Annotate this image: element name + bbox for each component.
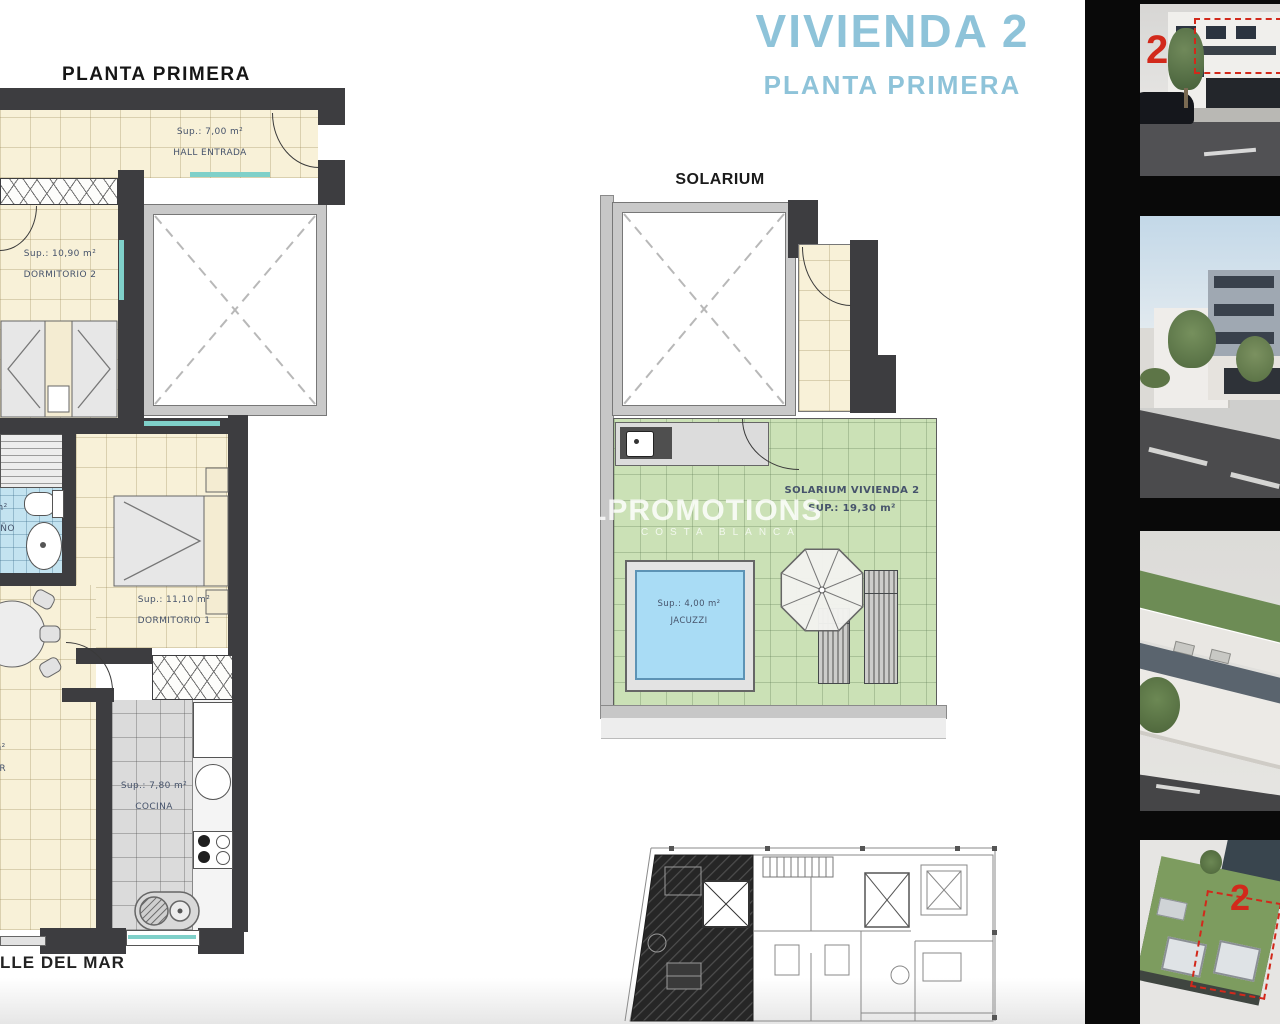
render-street-facade: 2: [1140, 4, 1280, 176]
bano-label: m²BAÑO: [0, 498, 26, 540]
wall-light: [601, 706, 946, 718]
floor-plan-title: PLANTA PRIMERA: [62, 64, 251, 86]
unit-number: 2: [1230, 880, 1250, 916]
wall: [40, 928, 126, 954]
salon-label-fragment: m²OR: [0, 738, 14, 780]
toilet-cistern: [52, 490, 64, 518]
cocina-label: Sup.: 7,80 m²COCINA: [114, 776, 194, 818]
road: [1140, 122, 1280, 176]
oven-circle: [195, 764, 231, 800]
jacuzzi-label: Sup.: 4,00 m²JACUZZI: [635, 596, 743, 630]
kitchen-sink: [134, 891, 200, 931]
unit-outline: [1194, 18, 1280, 74]
unit-number: 2: [1146, 30, 1168, 70]
tree: [1236, 336, 1274, 382]
render-aerial-building: [1140, 531, 1280, 811]
terrace-edge: [601, 718, 946, 739]
dining-table: [0, 588, 62, 684]
window-glass: [144, 421, 220, 426]
closet-hall: [0, 178, 118, 205]
garage-door: [1206, 78, 1280, 110]
main-subtitle: PLANTA PRIMERA: [700, 70, 1085, 101]
void-x-lines: [622, 212, 786, 406]
void-x-lines: [153, 214, 317, 406]
site-plan-drawing: [615, 845, 1000, 1024]
window-glass: [119, 240, 124, 300]
tree-trunk: [1184, 88, 1188, 108]
terrace-sink-drain: [634, 439, 639, 444]
burner: [216, 851, 230, 865]
bath-sink-drain: [40, 542, 46, 548]
watermark-tagline: COSTA BLANCA: [641, 527, 801, 538]
wall: [96, 700, 112, 932]
wall-light: [601, 196, 613, 712]
fridge: [193, 702, 233, 758]
solarium-void: [613, 203, 795, 415]
closet-corridor: [152, 655, 234, 700]
watermark-logo: LPROMOTIONS: [588, 494, 822, 528]
tree: [1168, 310, 1216, 368]
wall: [850, 355, 896, 413]
bush: [1140, 368, 1170, 388]
wall: [318, 160, 345, 205]
shower: [0, 434, 64, 488]
wall: [850, 240, 878, 358]
terrace-sink-basin: [626, 431, 654, 457]
hall-label: Sup.: 7,00 m²HALL ENTRADA: [150, 122, 270, 164]
brochure-page: PLANTA PRIMERA: [0, 0, 1280, 1024]
wall: [0, 88, 345, 110]
dormitorio1-label: Sup.: 11,10 m²DORMITORIO 1: [116, 590, 232, 632]
sun-lounger: [864, 570, 898, 684]
wall: [118, 170, 144, 432]
window-glass: [190, 172, 270, 177]
wall: [62, 434, 76, 582]
street-label: LLE DEL MAR: [0, 953, 125, 973]
solarium-title: SOLARIUM: [640, 171, 800, 189]
stairwell-void: [144, 205, 326, 415]
wall: [198, 928, 244, 954]
burner: [198, 851, 210, 863]
beds-dormitorio2: [0, 320, 118, 418]
wall: [0, 573, 76, 586]
burner: [216, 835, 230, 849]
render-street-view: [1140, 216, 1280, 498]
parasol: [776, 544, 868, 636]
burner: [198, 835, 210, 847]
tree: [1200, 850, 1222, 874]
render-aerial-solarium: 2: [1140, 840, 1280, 1024]
main-title: VIVIENDA 2: [700, 4, 1085, 58]
window-glass: [128, 935, 196, 939]
wall: [232, 655, 248, 932]
photo-sidebar: 2: [1085, 0, 1280, 1024]
wall: [318, 88, 345, 125]
dormitorio2-label: Sup.: 10,90 m²DORMITORIO 2: [6, 244, 114, 286]
window-sill: [0, 936, 46, 946]
